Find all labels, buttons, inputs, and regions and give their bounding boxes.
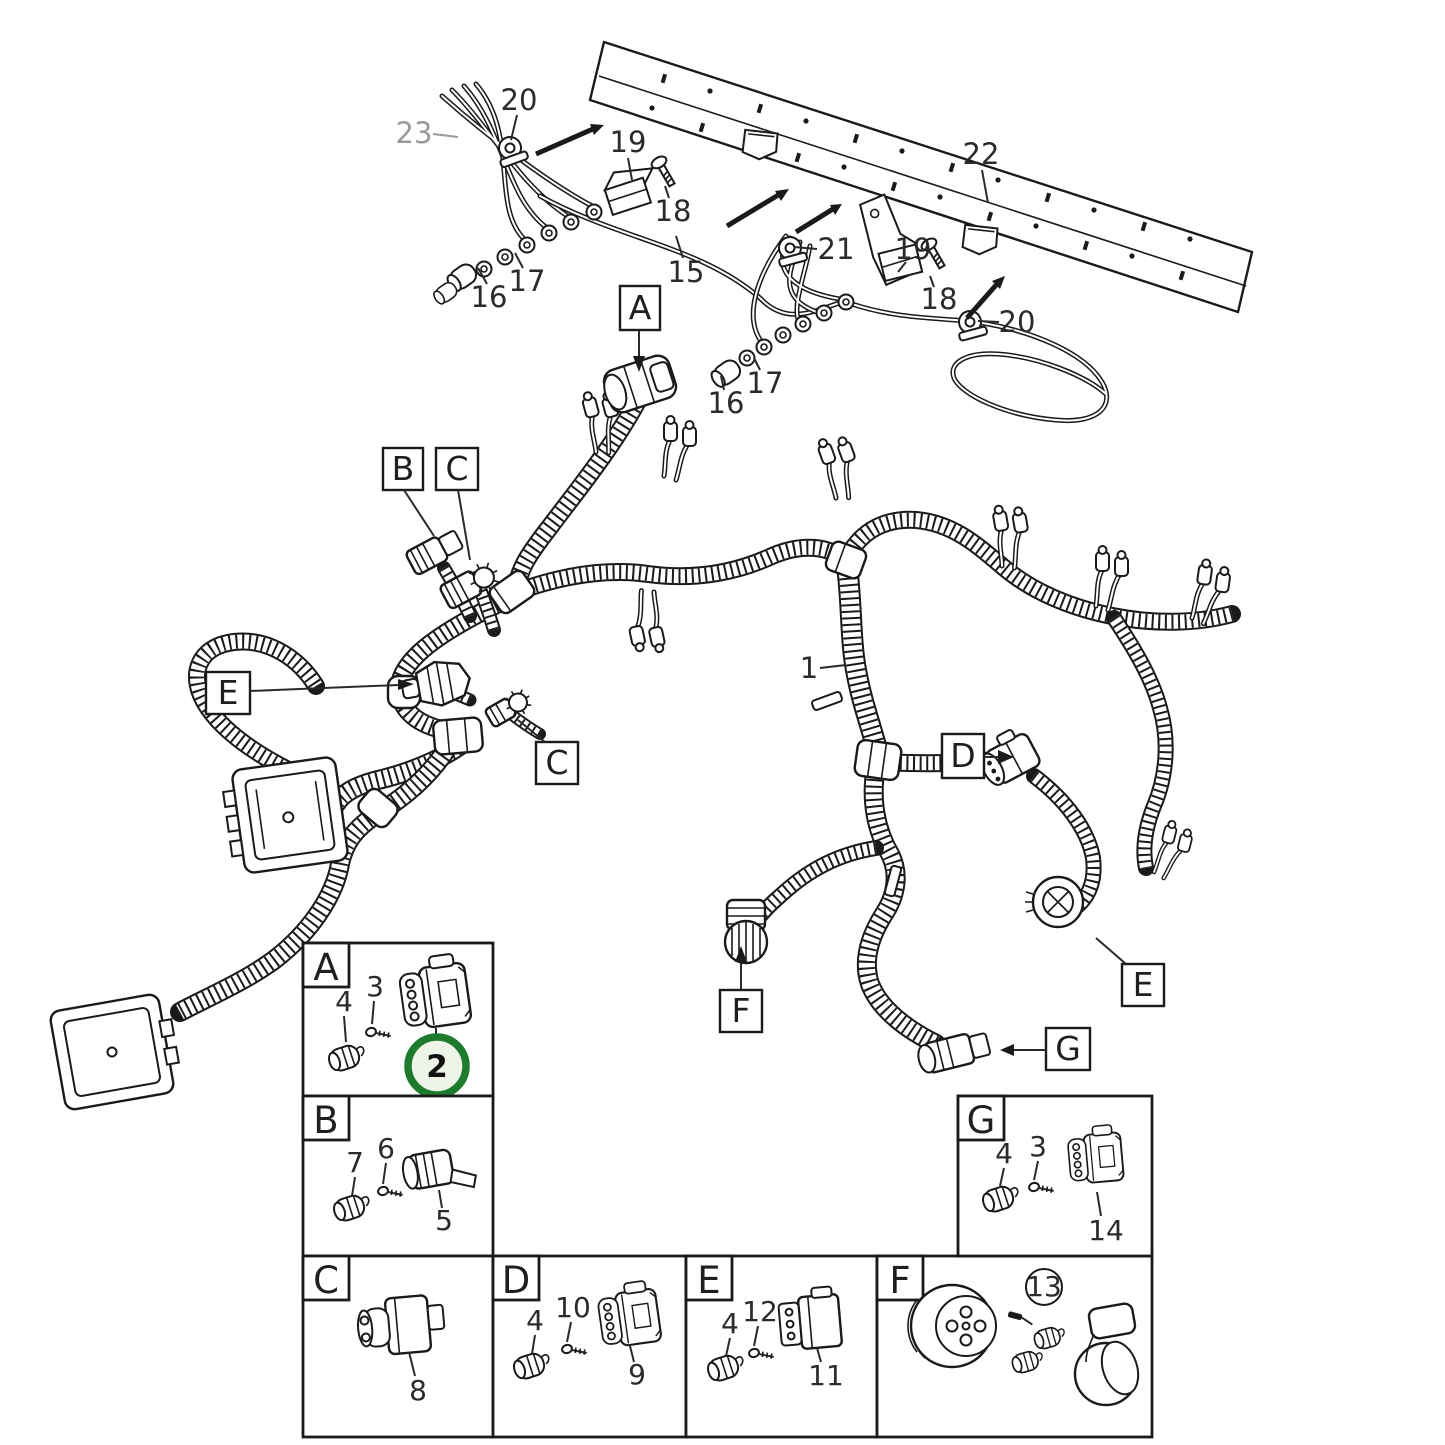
highlight-ring: 2 xyxy=(408,1037,466,1095)
label-21: 21 xyxy=(818,232,855,266)
cap-16-right xyxy=(708,357,743,390)
callout-box-b: B xyxy=(383,448,434,536)
label-20-right: 20 xyxy=(999,305,1036,339)
callout-box-e-right: E xyxy=(1096,938,1164,1006)
panel-d: D 4 10 9 xyxy=(493,1256,686,1437)
junction-sleeves xyxy=(355,540,902,897)
label-18-right: 18 xyxy=(921,282,958,316)
panel-g-label-4: 4 xyxy=(995,1137,1013,1170)
panel-e: E 4 12 11 xyxy=(686,1256,877,1437)
item-1-number: 1 xyxy=(800,651,818,685)
panel-f-letter: F xyxy=(889,1259,910,1302)
panel-f-label-13: 13 xyxy=(1026,1270,1062,1303)
parts-diagram-page: A B C E C D xyxy=(0,0,1445,1445)
parts-diagram: A B C E C D xyxy=(0,0,1445,1445)
cable-tie xyxy=(811,691,843,711)
panel-e-label-4: 4 xyxy=(721,1307,739,1340)
panel-d-label-10: 10 xyxy=(555,1291,591,1324)
part-number-2-highlighted: 2 xyxy=(426,1049,448,1085)
ecu-connector-block xyxy=(220,756,348,875)
callout-d-label: D xyxy=(950,736,975,775)
callout-g-label: G xyxy=(1055,1029,1081,1068)
screw-18-left xyxy=(650,154,679,189)
connector-f xyxy=(725,900,767,963)
panel-e-letter: E xyxy=(697,1259,720,1302)
panel-b: B 7 6 5 xyxy=(303,1096,493,1256)
label-16-left: 16 xyxy=(471,280,508,314)
panel-c-label-8: 8 xyxy=(409,1374,427,1407)
label-15: 15 xyxy=(668,255,705,289)
connector-b xyxy=(405,527,465,575)
label-17-left: 17 xyxy=(509,264,546,298)
panel-a: A 4 3 2 xyxy=(303,943,493,1096)
label-23: 23 xyxy=(396,116,433,150)
panel-d-label-9: 9 xyxy=(628,1358,646,1391)
label-17-right: 17 xyxy=(747,366,784,400)
callout-f-label: F xyxy=(732,991,751,1030)
panel-a-letter: A xyxy=(313,946,338,989)
panel-e-label-11: 11 xyxy=(808,1359,844,1392)
panel-g-letter: G xyxy=(967,1099,996,1142)
panel-b-letter: B xyxy=(313,1099,338,1142)
callout-c-top-label: C xyxy=(445,449,468,488)
panel-f: F 13 xyxy=(877,1256,1152,1437)
label-16-right: 16 xyxy=(708,386,745,420)
connector-round-f xyxy=(908,1285,996,1367)
panel-b-label-6: 6 xyxy=(377,1132,395,1165)
bracket-19-left xyxy=(601,161,663,215)
label-19-right: 19 xyxy=(895,232,932,266)
callout-c-mid-label: C xyxy=(545,743,568,782)
panel-c: C 8 xyxy=(303,1256,493,1437)
connector-e-right xyxy=(1025,877,1083,927)
main-harness xyxy=(49,353,1232,1111)
label-18-left: 18 xyxy=(655,194,692,228)
label-item-1: 1 xyxy=(800,651,846,685)
circled-label-13: 13 xyxy=(1026,1269,1062,1305)
injector-wire-sprigs xyxy=(580,386,1232,883)
connector-block-lower xyxy=(49,992,184,1111)
panel-g: G 4 3 14 xyxy=(958,1096,1152,1256)
label-22: 22 xyxy=(963,137,1000,171)
panel-a-label-4: 4 xyxy=(335,985,353,1018)
panel-e-label-12: 12 xyxy=(742,1295,778,1328)
panel-d-letter: D xyxy=(502,1259,531,1302)
panel-g-label-14: 14 xyxy=(1088,1214,1124,1247)
panel-a-label-3: 3 xyxy=(366,970,384,1003)
callout-e-right-label: E xyxy=(1133,965,1154,1004)
panel-b-label-5: 5 xyxy=(435,1204,453,1237)
panel-g-label-3: 3 xyxy=(1029,1130,1047,1163)
callout-e-left-label: E xyxy=(218,673,239,712)
callout-b-label: B xyxy=(392,449,415,488)
panel-c-letter: C xyxy=(313,1259,339,1302)
label-20-left: 20 xyxy=(501,83,538,117)
panel-d-label-4: 4 xyxy=(526,1304,544,1337)
clamp-21 xyxy=(774,234,808,267)
callout-a-top-label: A xyxy=(629,288,652,327)
callout-box-g: G xyxy=(1000,1028,1090,1070)
label-19-left: 19 xyxy=(610,125,647,159)
panel-b-label-7: 7 xyxy=(346,1146,364,1179)
